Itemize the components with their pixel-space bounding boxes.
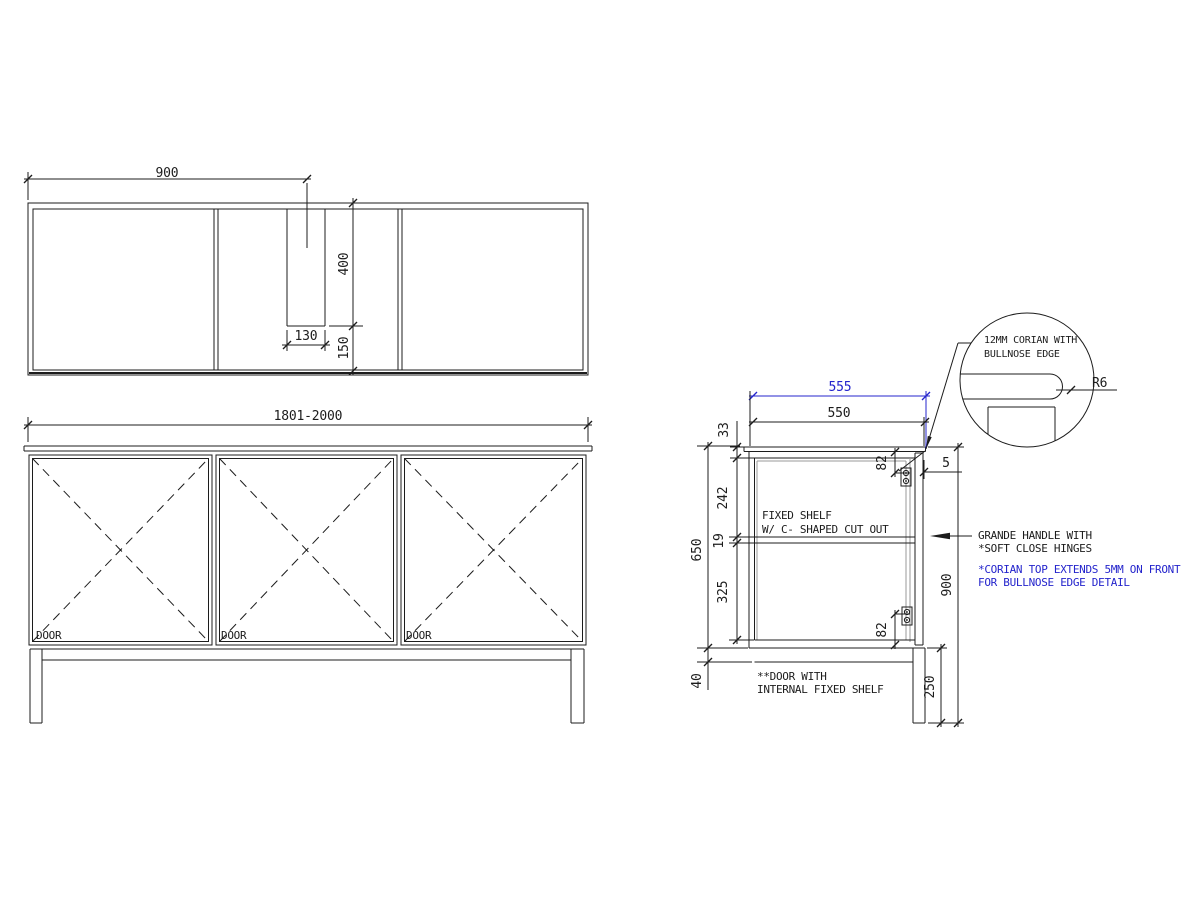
dim-side-rail-height-label: 40	[690, 673, 705, 688]
handle-arrow	[930, 533, 972, 539]
handle-note-line1: GRANDE HANDLE WITH	[978, 529, 1092, 542]
plan-divider-left	[214, 209, 218, 370]
side-fixed-shelf	[755, 537, 916, 543]
dim-side-lower-section: 325	[716, 539, 754, 644]
dim-hinge-bottom-label: 82	[875, 622, 890, 637]
dim-side-upper-section: 242	[716, 454, 741, 541]
side-carcass	[749, 452, 925, 663]
front-top-slab	[24, 446, 592, 451]
plan-inner-outline	[33, 209, 583, 370]
side-door-panel	[915, 453, 923, 645]
dim-plan-width: 900	[24, 166, 311, 248]
dim-plan-depth-label: 400	[337, 253, 352, 276]
dim-side-top-carcass-label: 550	[828, 406, 851, 421]
plan-view	[28, 203, 588, 375]
dim-overhang-label: 5	[942, 456, 950, 471]
plan-divider-right	[398, 209, 402, 370]
dim-total-height-label: 900	[940, 574, 955, 597]
dim-plan-slot-width-label: 130	[295, 329, 318, 344]
dim-plan-slot-width: 130	[282, 329, 330, 351]
fixed-shelf-note-line2: W/ C- SHAPED CUT OUT	[762, 523, 889, 536]
plan-outer-outline	[28, 203, 588, 375]
front-view	[24, 446, 592, 723]
fixed-shelf-note-line1: FIXED SHELF	[762, 509, 832, 522]
dim-side-top-carcass: 550	[749, 391, 929, 446]
dim-plan-slot-back: 150	[337, 322, 357, 375]
dim-plan-depth: 400	[329, 198, 363, 330]
detail-note-line1: 12MM CORIAN WITH	[984, 335, 1077, 346]
dim-side-top-thickness: 33	[717, 421, 749, 462]
corian-note-line1: *CORIAN TOP EXTENDS 5MM ON FRONT	[978, 563, 1181, 576]
dim-side-upper-section-label: 242	[716, 487, 731, 510]
detail-leader	[926, 343, 971, 449]
dim-front-overall: 1801-2000	[24, 409, 592, 442]
detail-note-line2: BULLNOSE EDGE	[984, 349, 1060, 360]
dim-hinge-top-label: 82	[875, 455, 890, 470]
dim-hinge-bottom: 82	[875, 610, 910, 649]
dim-side-top-overall-label: 555	[829, 380, 852, 395]
door-label-1: DOOR	[36, 629, 62, 642]
dim-plan-slot-back-label: 150	[337, 337, 352, 360]
plan-dimensions: 900 400 150 130	[24, 166, 363, 375]
technical-drawing: 900 400 150 130	[0, 0, 1200, 900]
dim-front-overall-label: 1801-2000	[274, 409, 343, 424]
dim-overhang: 5	[920, 456, 962, 479]
front-door-swings	[33, 459, 583, 642]
dim-hinge-top: 82	[875, 448, 910, 477]
dim-leg-height-label: 250	[923, 676, 938, 699]
dim-side-lower-section-label: 325	[716, 581, 731, 604]
dim-leg-height: 250	[923, 644, 947, 727]
drawing-sheet: 900 400 150 130	[0, 0, 1200, 900]
dim-side-carcass-height-label: 650	[690, 539, 705, 562]
plan-cable-slot	[287, 209, 325, 326]
front-base	[30, 649, 584, 723]
door-label-2: DOOR	[221, 629, 247, 642]
corian-note-line2: FOR BULLNOSE EDGE DETAIL	[978, 576, 1130, 589]
bullnose-profile	[960, 374, 1063, 441]
dim-plan-width-label: 900	[156, 166, 179, 181]
dim-radius: R6	[1056, 376, 1117, 394]
detail-circle	[960, 313, 1094, 447]
dim-side-rail-height: 40	[690, 644, 752, 690]
dim-radius-label: R6	[1092, 376, 1107, 391]
door-note-line2: INTERNAL FIXED SHELF	[757, 683, 883, 696]
handle-note-line2: *SOFT CLOSE HINGES	[978, 542, 1092, 555]
door-note-line1: **DOOR WITH	[757, 670, 827, 683]
door-label-3: DOOR	[406, 629, 432, 642]
dim-side-shelf-thickness: 19	[712, 531, 754, 549]
dim-side-top-thickness-label: 33	[717, 422, 732, 437]
detail-view: 12MM CORIAN WITH BULLNOSE EDGE R6	[926, 313, 1117, 449]
dim-side-shelf-thickness-label: 19	[712, 533, 727, 548]
